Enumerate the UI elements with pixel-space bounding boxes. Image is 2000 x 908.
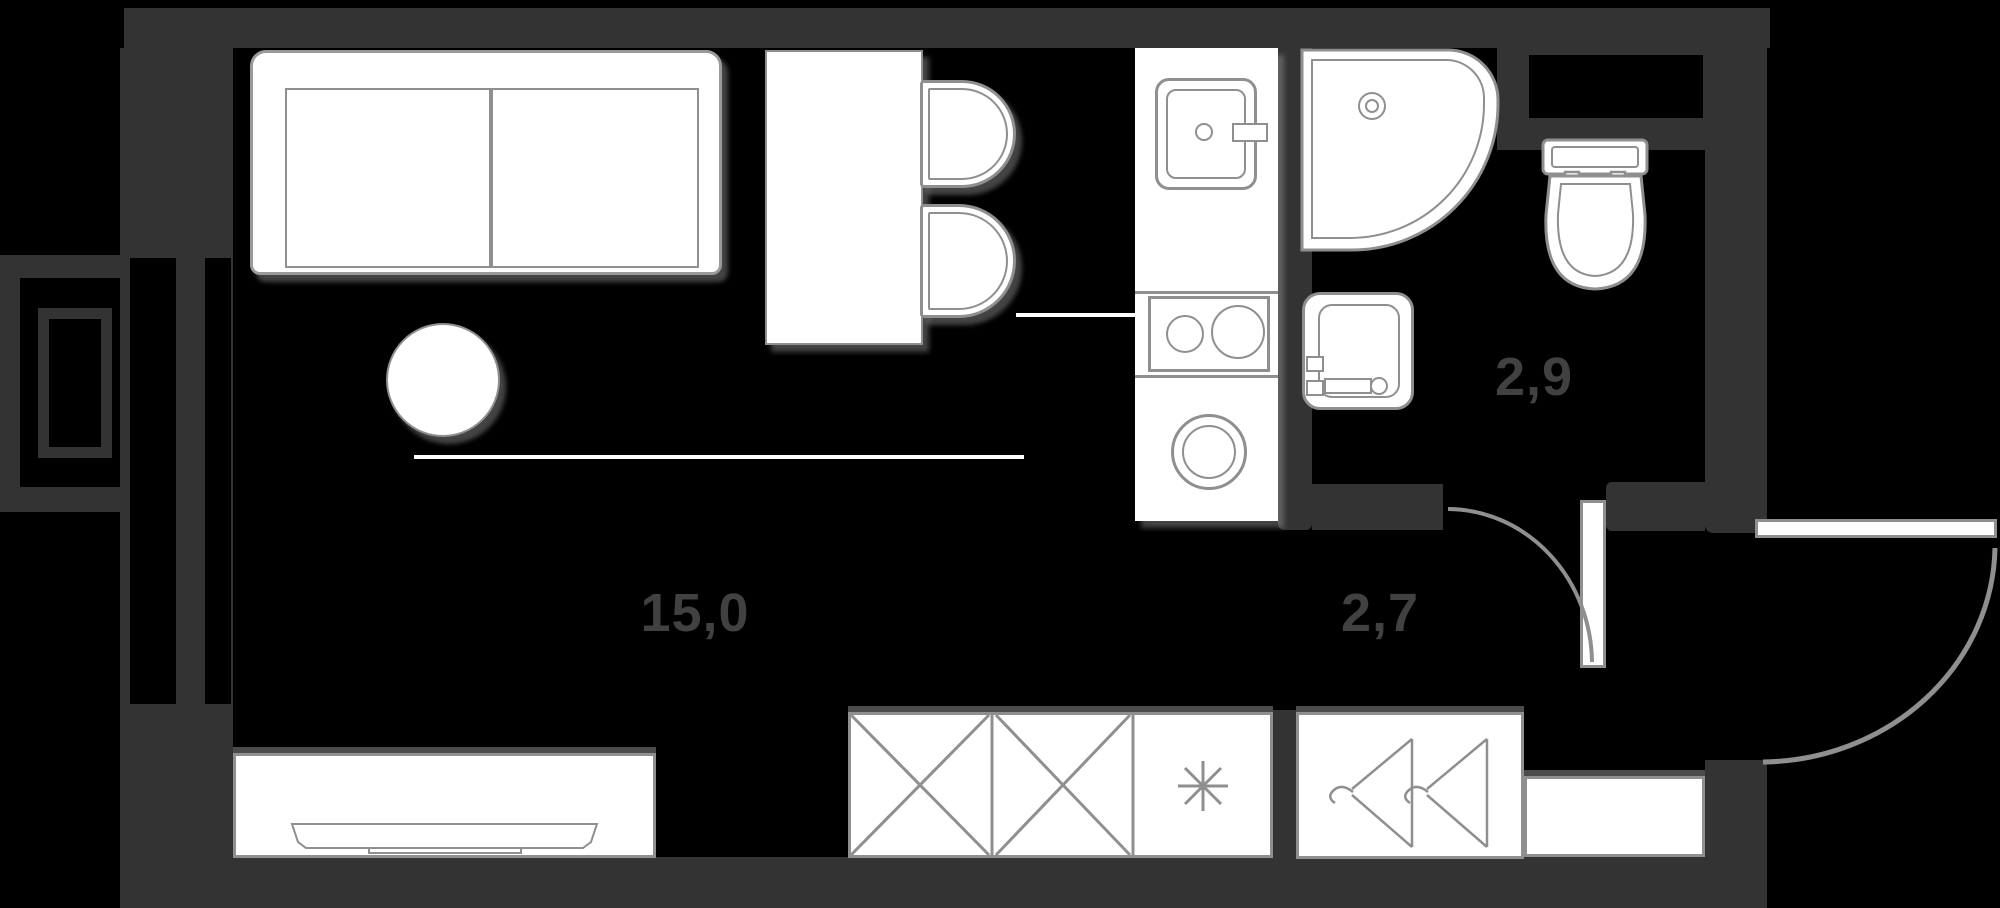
dining-table (765, 50, 923, 345)
basin-faucet-icon (1324, 378, 1372, 394)
entrance-door-leaf (1755, 519, 1997, 538)
wall-closet-stub (1273, 710, 1296, 858)
zone-line (414, 455, 1024, 459)
window-glass-pane (130, 258, 176, 704)
basin-tap-detail (1306, 380, 1324, 396)
entrance-door-arc (1763, 548, 1995, 762)
stove-burner (1211, 305, 1265, 359)
zone-line (1016, 313, 1135, 317)
stove-burner (1166, 315, 1204, 353)
wall-left-lower (120, 710, 233, 908)
wall-left-upper (120, 48, 233, 253)
washing-machine-door-inner (1182, 425, 1236, 479)
floor-plan: 15,0 2,7 2,9 (0, 0, 2000, 908)
bathroom-door-arc (1448, 509, 1592, 662)
wall-right-lower (1705, 760, 1767, 908)
wall-bottom (233, 857, 1767, 908)
balcony-wall-left (0, 255, 20, 512)
sofa-cushion (285, 88, 491, 268)
area-label-bathroom: 2,9 (1449, 347, 1619, 407)
shower (1302, 50, 1498, 250)
wall-bathroom-south-right (1606, 482, 1705, 531)
basin-faucet-knob (1370, 377, 1388, 395)
wall-top (124, 8, 1770, 48)
round-table (386, 323, 500, 437)
shelf (1524, 776, 1705, 857)
shower-drain-icon (1359, 93, 1385, 119)
toilet (1543, 140, 1647, 289)
window-glass-pane (205, 258, 231, 704)
area-label-living-room: 15,0 (610, 583, 780, 643)
wall-bathroom-south-left (1312, 484, 1443, 530)
balcony-railing (38, 308, 112, 458)
balcony-wall-bottom (0, 487, 123, 512)
tv-stand (233, 753, 656, 858)
bathroom-door-leaf (1580, 500, 1606, 668)
hanger-closet (1296, 712, 1524, 859)
wall-kitchen-partition (1278, 48, 1312, 530)
duct-niche (1529, 55, 1703, 118)
wall-right-upper (1705, 48, 1767, 533)
area-label-hallway: 2,7 (1295, 583, 1465, 643)
counter-divider (1135, 291, 1278, 294)
basin-tap-detail (1306, 356, 1324, 372)
counter-divider (1135, 375, 1278, 378)
wardrobe (848, 712, 1273, 858)
sofa-cushion (491, 88, 699, 268)
sink-drain (1195, 123, 1213, 141)
faucet-icon (1232, 123, 1268, 142)
